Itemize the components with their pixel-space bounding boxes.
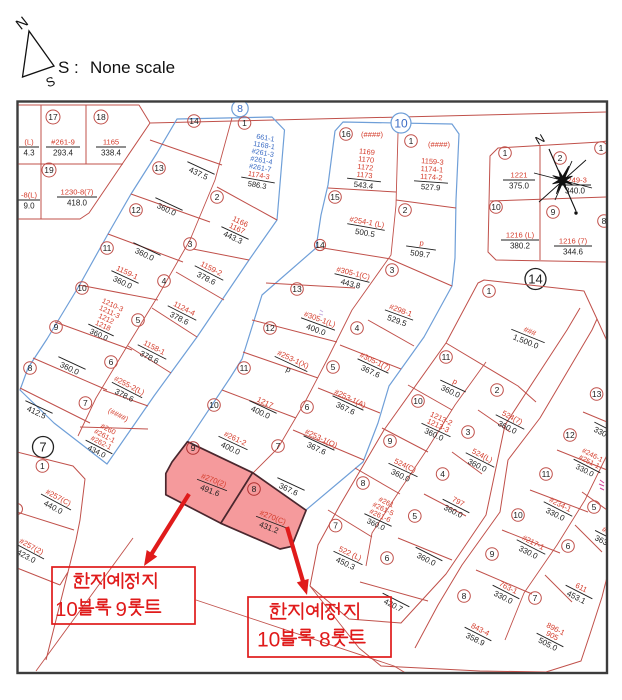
svg-text:1165: 1165 <box>103 138 119 147</box>
svg-text:4: 4 <box>162 276 167 286</box>
svg-text:12: 12 <box>565 430 575 440</box>
svg-text:11: 11 <box>442 352 451 362</box>
svg-text:14: 14 <box>189 116 199 126</box>
svg-text:10: 10 <box>513 510 523 520</box>
svg-text:340.0: 340.0 <box>565 187 586 196</box>
svg-text:2: 2 <box>558 153 563 163</box>
svg-text:1216 (L): 1216 (L) <box>506 231 535 240</box>
svg-text:(####): (####) <box>428 140 450 149</box>
svg-text:9: 9 <box>551 207 556 217</box>
svg-text:1: 1 <box>599 143 604 153</box>
svg-text:9.0: 9.0 <box>23 202 35 211</box>
svg-text:13: 13 <box>154 163 164 173</box>
svg-text:1: 1 <box>242 118 247 128</box>
svg-text:S :: S : <box>58 58 79 77</box>
svg-text:9: 9 <box>191 443 196 453</box>
svg-text:10: 10 <box>413 396 423 406</box>
svg-text:375.0: 375.0 <box>509 182 530 191</box>
svg-text:7: 7 <box>276 441 281 451</box>
svg-text:9: 9 <box>54 322 59 332</box>
svg-text:2: 2 <box>215 192 220 202</box>
svg-text:7: 7 <box>533 593 538 603</box>
svg-text:9: 9 <box>388 436 393 446</box>
svg-text:418.0: 418.0 <box>67 199 88 208</box>
svg-text:17: 17 <box>48 112 58 122</box>
svg-text:2: 2 <box>495 385 500 395</box>
svg-text:8: 8 <box>361 478 366 488</box>
svg-text:12: 12 <box>265 323 275 333</box>
svg-text:293.4: 293.4 <box>53 149 74 158</box>
svg-text:11: 11 <box>240 363 249 373</box>
svg-text:1230-8(7): 1230-8(7) <box>61 188 94 197</box>
svg-text:7: 7 <box>39 440 46 455</box>
svg-text:13: 13 <box>592 389 602 399</box>
svg-text:5: 5 <box>331 362 336 372</box>
svg-text:10: 10 <box>55 598 78 621</box>
svg-text:344.6: 344.6 <box>563 248 584 257</box>
svg-text:12: 12 <box>131 205 141 215</box>
svg-text:8: 8 <box>252 484 257 494</box>
svg-text:7: 7 <box>333 521 338 531</box>
svg-text:3: 3 <box>466 427 471 437</box>
svg-text:1216 (7): 1216 (7) <box>559 237 588 246</box>
svg-text:4.3: 4.3 <box>23 149 35 158</box>
svg-text:5: 5 <box>412 511 417 521</box>
svg-text:3: 3 <box>188 239 193 249</box>
svg-text:1: 1 <box>487 286 492 296</box>
svg-text:10: 10 <box>77 283 87 293</box>
svg-text:5: 5 <box>136 315 141 325</box>
svg-text:4: 4 <box>440 469 445 479</box>
svg-text:1221: 1221 <box>511 171 528 180</box>
svg-text:10: 10 <box>491 202 501 212</box>
svg-text:11: 11 <box>103 243 112 253</box>
svg-text:1: 1 <box>40 461 45 471</box>
svg-text:11: 11 <box>542 469 551 479</box>
svg-text:8: 8 <box>319 628 331 651</box>
svg-text:4: 4 <box>355 323 360 333</box>
svg-text:9: 9 <box>116 598 127 621</box>
svg-text:16: 16 <box>341 129 351 139</box>
svg-text:19: 19 <box>44 165 54 175</box>
svg-text:1174-2: 1174-2 <box>420 172 443 183</box>
svg-text:9: 9 <box>490 549 495 559</box>
svg-text:2: 2 <box>403 205 408 215</box>
svg-text:14: 14 <box>528 272 542 287</box>
svg-text:380.2: 380.2 <box>510 242 531 251</box>
svg-text:10: 10 <box>257 628 280 651</box>
svg-text:7: 7 <box>83 398 88 408</box>
svg-text:(####): (####) <box>361 130 383 139</box>
svg-text:8: 8 <box>28 363 33 373</box>
svg-text:1173: 1173 <box>356 170 373 181</box>
svg-text:1: 1 <box>503 148 508 158</box>
svg-text:6: 6 <box>109 357 114 367</box>
svg-text:14: 14 <box>315 240 325 250</box>
svg-text:(L): (L) <box>24 138 34 147</box>
svg-text:10: 10 <box>209 400 219 410</box>
svg-text:None scale: None scale <box>90 58 175 77</box>
svg-text:6: 6 <box>566 541 571 551</box>
svg-text:18: 18 <box>96 112 106 122</box>
svg-text:6: 6 <box>305 402 310 412</box>
svg-text:338.4: 338.4 <box>101 149 122 158</box>
svg-text:15: 15 <box>330 192 340 202</box>
svg-text:3: 3 <box>390 265 395 275</box>
svg-text:8: 8 <box>602 216 607 226</box>
svg-text:10: 10 <box>394 117 408 131</box>
svg-text:527.9: 527.9 <box>421 182 441 192</box>
svg-text:8: 8 <box>237 103 243 115</box>
svg-text:13: 13 <box>292 284 302 294</box>
svg-text:5: 5 <box>592 502 597 512</box>
svg-text:1: 1 <box>409 136 414 146</box>
svg-text:-8(L): -8(L) <box>21 191 38 200</box>
svg-text:#261-9: #261-9 <box>51 138 75 147</box>
svg-text:8: 8 <box>462 591 467 601</box>
svg-text:6: 6 <box>385 553 390 563</box>
